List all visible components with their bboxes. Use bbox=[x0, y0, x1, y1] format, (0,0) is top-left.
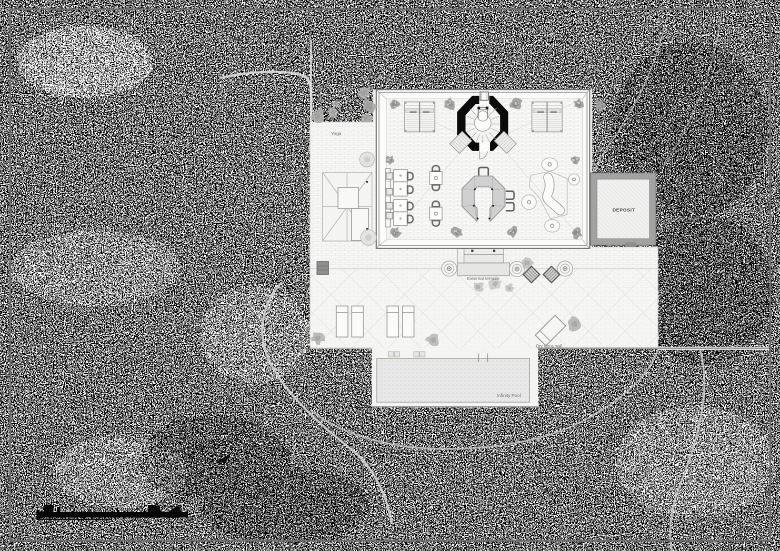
svg-text:External terrace: External terrace bbox=[467, 276, 500, 281]
svg-text:DEPOSIT: DEPOSIT bbox=[613, 208, 636, 213]
svg-text:Dry stone wall: Dry stone wall bbox=[536, 343, 562, 348]
svg-text:Yoga: Yoga bbox=[331, 131, 342, 136]
svg-text:Infinity Pool: Infinity Pool bbox=[497, 393, 521, 398]
